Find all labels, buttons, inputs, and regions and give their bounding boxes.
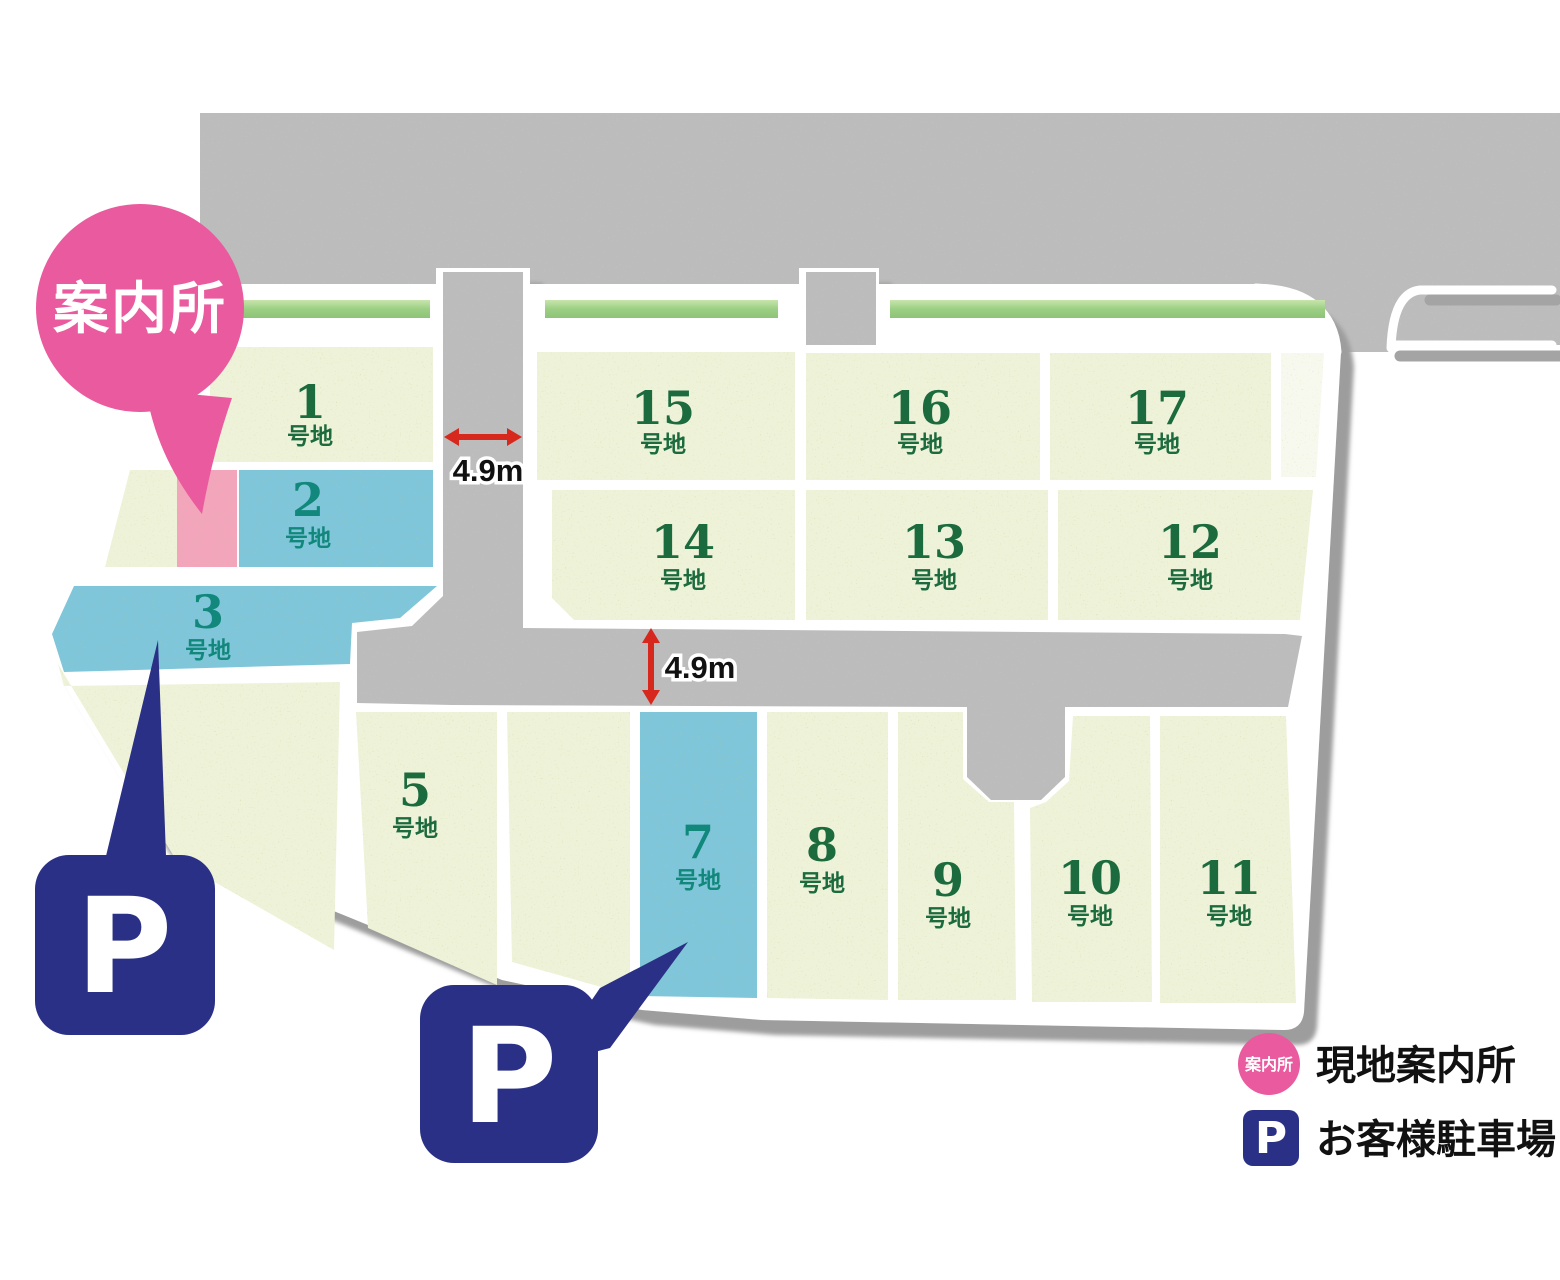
lot-15-number: 15 (631, 381, 695, 435)
lot-2-parcel (239, 470, 433, 567)
lot-15-suffix: 号地 (640, 431, 686, 458)
legend: 案内所 現地案内所 P お客様駐車場 (1238, 1033, 1556, 1166)
legend-parking-label: お客様駐車場 (1316, 1118, 1556, 1162)
lot-17-number: 17 (1125, 381, 1189, 435)
office-balloon-label: 案内所 (53, 277, 227, 340)
parking-marker-south-symbol: P (461, 1000, 558, 1154)
lot-14-number: 14 (651, 515, 715, 569)
lot-12-suffix: 号地 (1167, 567, 1213, 594)
lot-13-number: 13 (902, 515, 966, 569)
lot-12-number: 12 (1158, 515, 1222, 569)
hedge-strip-center (545, 300, 778, 318)
lot-3-suffix: 号地 (185, 637, 231, 664)
lot-16-number: 16 (888, 381, 952, 435)
lot-17-suffix: 号地 (1134, 431, 1180, 458)
lot-5-suffix: 号地 (392, 815, 438, 842)
road-width-label-1: 4.9m (453, 453, 524, 488)
lot-10-suffix: 号地 (1067, 903, 1113, 930)
lot-6-parcel (507, 712, 630, 995)
lot-7-number: 7 (682, 815, 714, 869)
road-gap-north (806, 272, 876, 345)
lot-9-suffix: 号地 (925, 905, 971, 932)
hedge-strip-west (228, 300, 430, 318)
lot-10-number: 10 (1058, 851, 1122, 905)
parking-marker-west-symbol: P (76, 870, 173, 1024)
lot-11-suffix: 号地 (1206, 903, 1252, 930)
lot-13-suffix: 号地 (911, 567, 957, 594)
lot-3-number: 3 (192, 585, 224, 639)
lot-11-number: 11 (1197, 851, 1261, 905)
legend-parking-badge-text: P (1255, 1113, 1287, 1164)
lot-14-suffix: 号地 (660, 567, 706, 594)
lot-8-number: 8 (806, 818, 838, 872)
lot-1-number: 1 (294, 375, 326, 429)
lot-5-parcel (356, 712, 497, 985)
lot-8-suffix: 号地 (799, 870, 845, 897)
road-width-annotation-1: 4.9m (444, 428, 523, 488)
lot-16-suffix: 号地 (897, 431, 943, 458)
lot-9-number: 9 (932, 853, 964, 907)
lot-7-suffix: 号地 (675, 867, 721, 894)
lot-1-suffix: 号地 (287, 423, 333, 450)
hedge-strip-east (890, 300, 1325, 318)
lot-2-number: 2 (292, 473, 324, 527)
lot-2-suffix: 号地 (285, 525, 331, 552)
site-plan-map: 1 号地 2 号地 3 号地 5 号地 7 号地 8 号地 9 号地 10 号地… (0, 0, 1560, 1280)
legend-office-label: 現地案内所 (1316, 1044, 1516, 1088)
lot-5-number: 5 (399, 763, 431, 817)
road-width-label-2: 4.9m (665, 650, 736, 685)
legend-office-badge-text: 案内所 (1244, 1055, 1293, 1074)
